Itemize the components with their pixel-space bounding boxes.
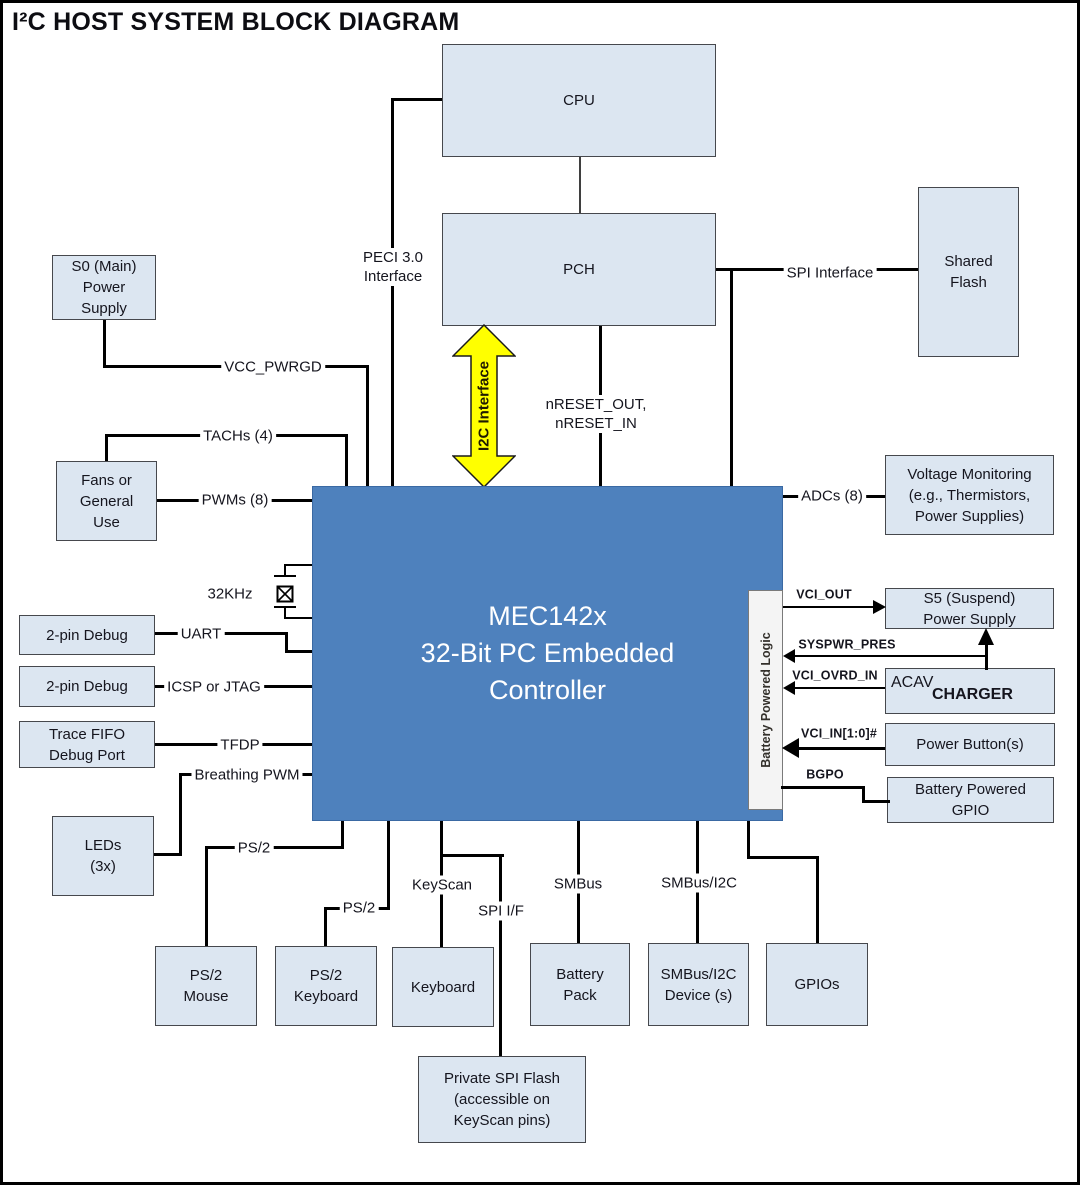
label-keyscan: KeyScan bbox=[409, 876, 475, 895]
wire-breathing-2 bbox=[179, 773, 182, 856]
wire-peci-drop bbox=[391, 98, 394, 488]
wire-vcc-3 bbox=[366, 365, 369, 488]
label-peci: PECI 3.0 Interface bbox=[360, 248, 426, 286]
block-charger: ACAV CHARGER bbox=[885, 668, 1055, 714]
label-adcs: ADCs (8) bbox=[798, 487, 866, 506]
label-ps2-keyboard: PS/2 bbox=[340, 899, 379, 918]
block-private-spi-flash: Private SPI Flash (accessible on KeyScan… bbox=[418, 1056, 586, 1143]
battery-powered-logic-label: Battery Powered Logic bbox=[759, 632, 773, 767]
crystal-icon bbox=[276, 585, 294, 603]
block-voltage-monitoring: Voltage Monitoring (e.g., Thermistors, P… bbox=[885, 455, 1054, 535]
wire-vci-out bbox=[783, 606, 877, 608]
wire-syspwr-pres bbox=[793, 655, 986, 657]
arrowhead-left-icon bbox=[782, 738, 799, 758]
block-2pin-debug-uart: 2-pin Debug bbox=[19, 615, 155, 655]
block-ps2-mouse: PS/2 Mouse bbox=[155, 946, 257, 1026]
block-diagram: I²C HOST SYSTEM BLOCK DIAGRAM bbox=[0, 0, 1080, 1185]
wire-xtal-plate1 bbox=[274, 575, 296, 577]
block-leds: LEDs (3x) bbox=[52, 816, 154, 896]
wire-gpio-3 bbox=[816, 856, 819, 945]
wire-spiif-2 bbox=[499, 854, 502, 1058]
block-mec142x-controller: MEC142x 32-Bit PC Embedded Controller bbox=[312, 486, 783, 821]
label-syspwr-pres: SYSPWR_PRES bbox=[795, 636, 898, 655]
wire-cpu-pch bbox=[579, 155, 581, 215]
block-fans: Fans or General Use bbox=[56, 461, 157, 541]
wire-vcc-1 bbox=[103, 317, 106, 367]
label-smbus: SMBus bbox=[551, 875, 605, 894]
label-tfdp: TFDP bbox=[217, 736, 262, 755]
wire-ps2m-3 bbox=[205, 846, 208, 948]
wire-xtal-stub-top bbox=[284, 564, 314, 566]
wire-spiif-1 bbox=[440, 854, 504, 857]
label-tachs: TACHs (4) bbox=[200, 427, 276, 446]
block-ps2-keyboard: PS/2 Keyboard bbox=[275, 946, 377, 1026]
wire-ps2k-3 bbox=[324, 907, 327, 948]
wire-spi-drop bbox=[730, 268, 733, 488]
block-gpios: GPIOs bbox=[766, 943, 868, 1026]
block-pch: PCH bbox=[442, 213, 716, 326]
label-vci-out: VCI_OUT bbox=[793, 586, 855, 605]
block-2pin-debug-icsp: 2-pin Debug bbox=[19, 666, 155, 707]
block-smbus-device: SMBus/I2C Device (s) bbox=[648, 943, 749, 1026]
wire-peci bbox=[391, 98, 443, 101]
block-s0-power-supply: S0 (Main) Power Supply bbox=[52, 255, 156, 320]
wire-tachs-3 bbox=[345, 434, 348, 488]
wire-ps2m-1 bbox=[341, 819, 344, 849]
label-nreset: nRESET_OUT, nRESET_IN bbox=[543, 395, 650, 433]
wire-xtal-stub-bottom bbox=[284, 617, 314, 619]
label-icsp-jtag: ICSP or JTAG bbox=[164, 678, 264, 697]
label-breathing-pwm: Breathing PWM bbox=[191, 766, 302, 785]
block-shared-flash: Shared Flash bbox=[918, 187, 1019, 357]
block-power-buttons: Power Button(s) bbox=[885, 723, 1055, 766]
block-battery-powered-gpio: Battery Powered GPIO bbox=[887, 777, 1054, 823]
wire-ps2k-1 bbox=[387, 819, 390, 910]
block-battery-pack: Battery Pack bbox=[530, 943, 630, 1026]
block-keyboard: Keyboard bbox=[392, 947, 494, 1027]
wire-bgpo-3 bbox=[862, 800, 890, 803]
label-vci-ovrd-in: VCI_OVRD_IN bbox=[789, 667, 881, 686]
label-uart: UART bbox=[178, 625, 225, 644]
label-ps2-mouse: PS/2 bbox=[235, 839, 274, 858]
label-spi-if: SPI I/F bbox=[475, 902, 527, 921]
diagram-title: I²C HOST SYSTEM BLOCK DIAGRAM bbox=[12, 8, 459, 37]
label-bgpo: BGPO bbox=[803, 766, 847, 785]
wire-bgpo-1 bbox=[781, 786, 865, 789]
label-spi-interface: SPI Interface bbox=[784, 264, 877, 283]
arrowhead-left-icon bbox=[783, 649, 795, 663]
wire-vci-ovrd bbox=[793, 687, 885, 689]
wire-vci-in bbox=[796, 747, 885, 750]
label-32khz: 32KHz bbox=[204, 585, 255, 604]
wire-tachs-1 bbox=[105, 434, 108, 463]
label-smbus-i2c: SMBus/I2C bbox=[658, 874, 740, 893]
wire-charger-s5 bbox=[985, 644, 988, 670]
label-vcc-pwrgd: VCC_PWRGD bbox=[221, 358, 325, 377]
wire-breathing-3 bbox=[151, 853, 182, 856]
charger-label: CHARGER bbox=[932, 684, 1013, 705]
wire-gpio-2 bbox=[747, 856, 819, 859]
block-trace-fifo: Trace FIFO Debug Port bbox=[19, 721, 155, 768]
wire-ps2m-2 bbox=[205, 846, 344, 849]
wire-uart-3 bbox=[285, 650, 314, 653]
block-cpu: CPU bbox=[442, 44, 716, 157]
i2c-interface-label: I2C Interface bbox=[476, 361, 493, 451]
label-pwms: PWMs (8) bbox=[199, 491, 272, 510]
label-vci-in: VCI_IN[1:0]# bbox=[798, 725, 880, 744]
charger-acav-label: ACAV bbox=[891, 672, 933, 693]
arrowhead-up-icon bbox=[978, 628, 994, 645]
wire-gpio-1 bbox=[747, 819, 750, 859]
block-s5-power-supply: S5 (Suspend) Power Supply bbox=[885, 588, 1054, 629]
arrowhead-right-icon bbox=[873, 600, 886, 614]
